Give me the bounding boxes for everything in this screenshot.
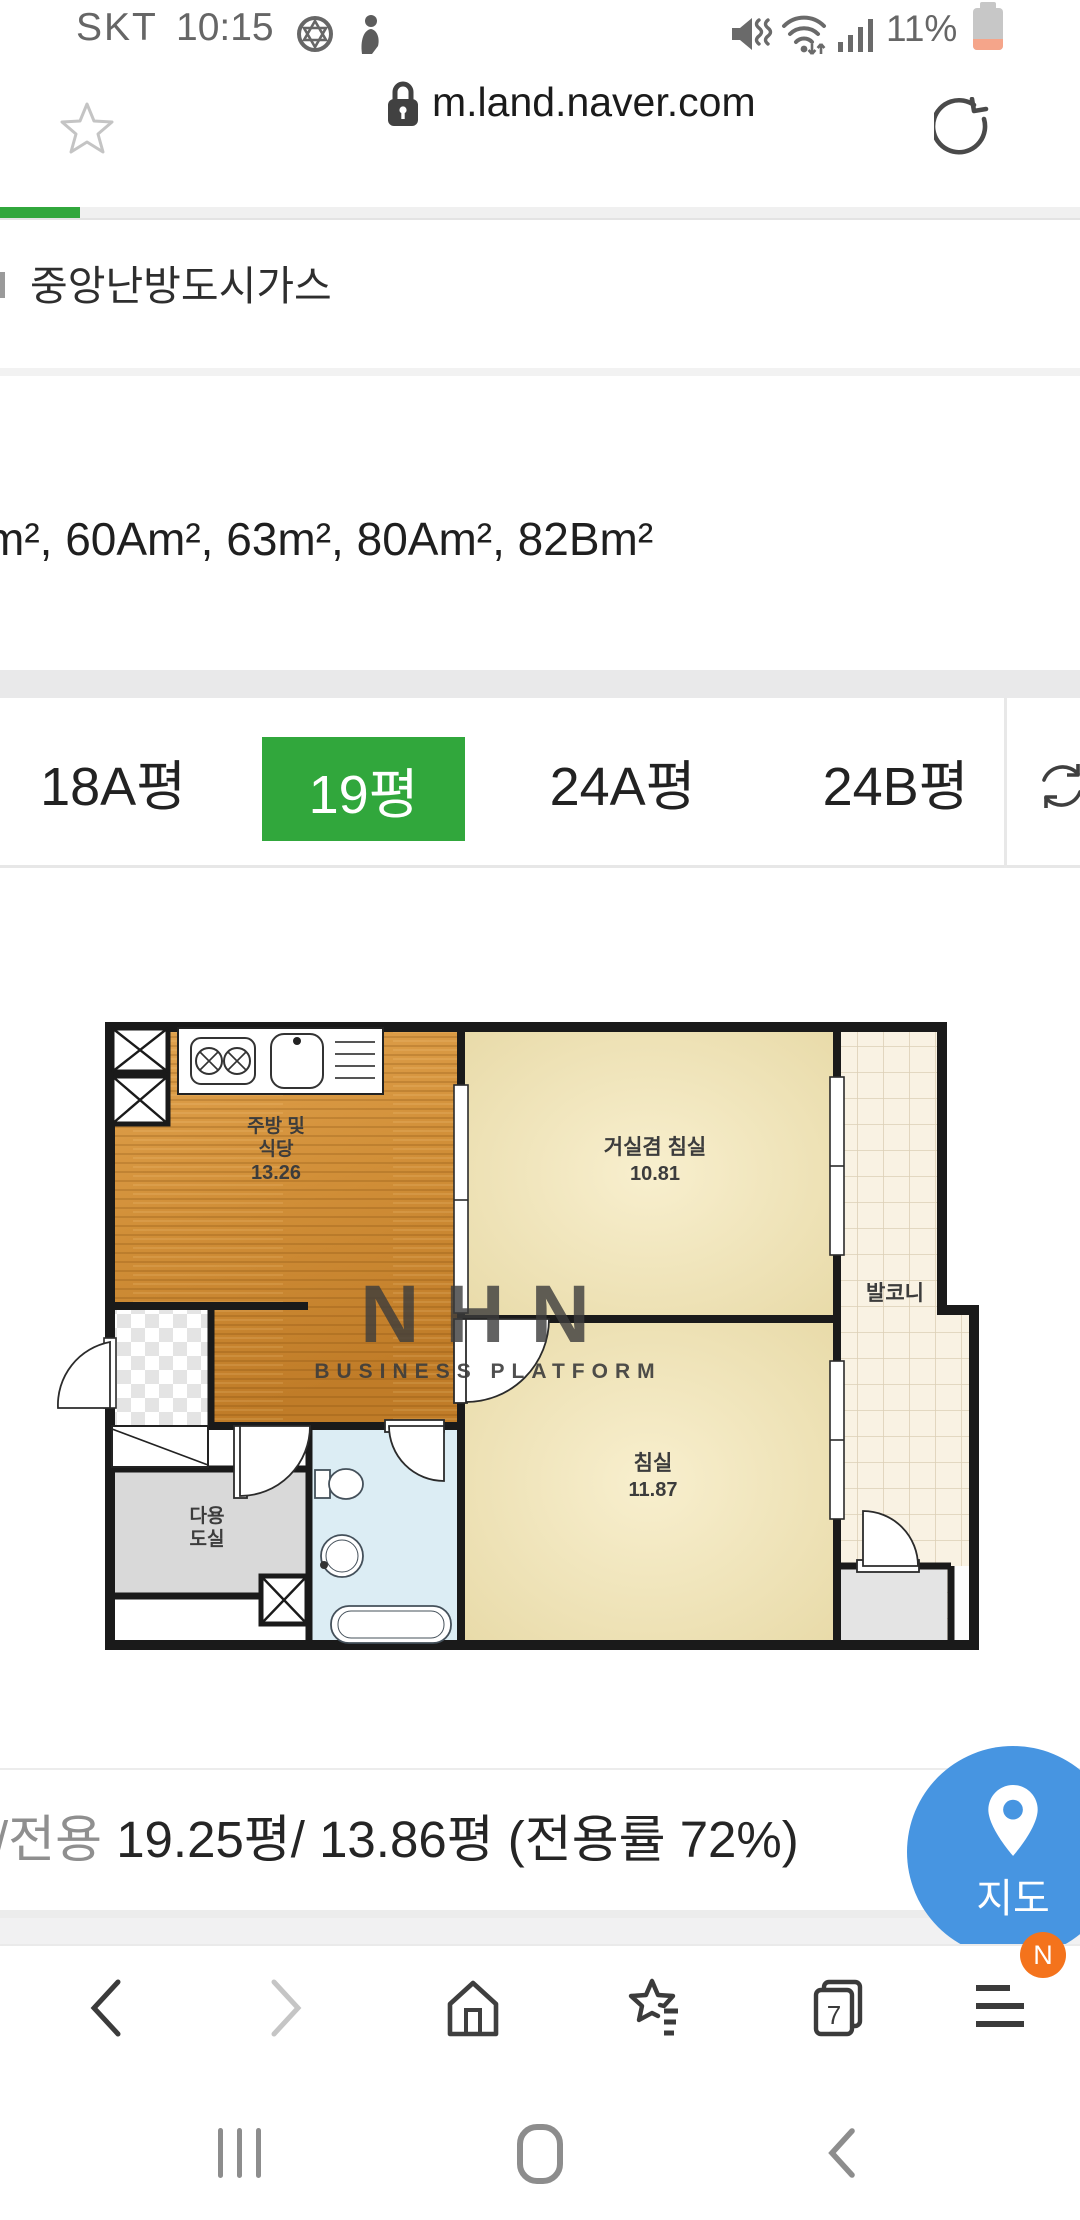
watermark-business-platform: BUSINESS PLATFORM — [314, 1360, 661, 1383]
phone-screen: SKT 10:15 11% — [0, 0, 1080, 2220]
kitchen-counter — [178, 1028, 383, 1094]
living-label: 거실겸 침실 — [604, 1136, 706, 1159]
floorplan-image: 주방 및 식당 13.26 거실겸 침실 10.81 침실 11.87 발코니 … — [55, 1020, 983, 1660]
kitchen-label: 주방 및 — [247, 1115, 305, 1137]
living-area: 10.81 — [630, 1163, 680, 1185]
toilet-icon — [315, 1470, 330, 1498]
summary-main-text: 19.25평/ 13.86평 (전용률 72%) — [102, 1811, 799, 1868]
status-bar: SKT 10:15 11% — [0, 0, 1080, 57]
mute-vibrate-icon — [728, 14, 774, 54]
home-nav-icon[interactable] — [516, 2123, 564, 2185]
map-button-label: 지도 — [976, 1866, 1050, 1924]
tab-24b-label: 24B평 — [823, 742, 969, 821]
hexagram-circle-icon — [295, 14, 335, 54]
utility-label: 다용 — [190, 1505, 225, 1527]
battery-level — [973, 39, 1003, 50]
bottom-gray-band — [0, 1918, 1080, 1944]
back-icon[interactable] — [82, 1976, 128, 2040]
tabbar-divider — [1004, 698, 1007, 868]
duct-box — [261, 1576, 307, 1624]
forward-icon[interactable] — [264, 1976, 310, 2040]
carrier-label: SKT — [76, 6, 158, 50]
section-divider — [0, 368, 1080, 376]
battery-percent-label: 11% — [886, 8, 957, 50]
floorplan-tab-bar: 18A평 19평 24A평 24B평 — [0, 698, 1080, 868]
tab-section-top-band — [0, 670, 1080, 698]
kitchen-area: 13.26 — [251, 1162, 301, 1184]
home-icon[interactable] — [442, 1976, 504, 2040]
area-size-list: m², 60Am², 63m², 80Am², 82Bm² — [0, 512, 653, 566]
closet-boxes — [112, 1028, 168, 1124]
tab-24b[interactable]: 24B평 — [808, 698, 983, 865]
back-nav-icon[interactable] — [822, 2125, 862, 2181]
ac-room-floor — [841, 1566, 947, 1644]
chrome-divider — [0, 218, 1080, 220]
bedroom-area: 11.87 — [629, 1479, 678, 1501]
browser-url-bar: m.land.naver.com — [0, 57, 1080, 207]
tab-19-label: 19평 — [309, 750, 419, 829]
wifi-icon — [779, 12, 829, 58]
signal-icon — [838, 16, 880, 54]
android-nav-bar — [0, 2070, 1080, 2220]
entry-door — [58, 1342, 110, 1408]
page-load-progress-track — [0, 207, 1080, 218]
entry-floor — [110, 1306, 211, 1426]
heating-info-text: 중앙난방도시가스 — [30, 252, 332, 312]
tab-24a-label: 24A평 — [550, 742, 696, 821]
recents-icon[interactable] — [214, 2125, 266, 2181]
tab-19[interactable]: 19평 — [262, 737, 465, 841]
person-icon — [352, 12, 386, 56]
menu-icon[interactable] — [968, 1976, 1032, 2040]
bedroom-label: 침실 — [634, 1452, 673, 1475]
rotate-refresh-icon[interactable] — [1036, 760, 1080, 812]
battery-icon — [973, 8, 1003, 50]
tab-count-label: 7 — [827, 2000, 841, 2030]
tab-18a[interactable]: 18A평 — [28, 698, 198, 865]
lock-icon — [383, 79, 423, 129]
watermark-nhn: NHN — [360, 1269, 616, 1360]
tabs-icon[interactable]: 7 — [808, 1976, 870, 2040]
reload-icon[interactable] — [934, 97, 992, 155]
map-pin-icon — [976, 1780, 1050, 1864]
balcony-label: 발코니 — [866, 1282, 924, 1305]
summary-gray-text: /전용 — [0, 1811, 102, 1868]
naver-badge-label: N — [1033, 1940, 1053, 1971]
tab-24a[interactable]: 24A평 — [535, 698, 710, 865]
clipped-text-fragment — [0, 272, 5, 298]
tab-18a-label: 18A평 — [40, 742, 186, 821]
bookmarks-icon[interactable] — [626, 1976, 688, 2040]
shoe-closet — [112, 1426, 208, 1467]
url-text[interactable]: m.land.naver.com — [432, 79, 756, 126]
page-load-progress — [0, 207, 80, 218]
utility-label2: 도실 — [190, 1528, 225, 1550]
browser-toolbar: 7 N — [0, 1944, 1080, 2070]
naver-badge: N — [1020, 1932, 1066, 1978]
bookmark-star-icon[interactable] — [58, 99, 116, 157]
status-clock: 10:15 — [176, 6, 274, 50]
kitchen-label2: 식당 — [259, 1138, 294, 1160]
summary-bottom-border — [0, 1910, 1080, 1918]
